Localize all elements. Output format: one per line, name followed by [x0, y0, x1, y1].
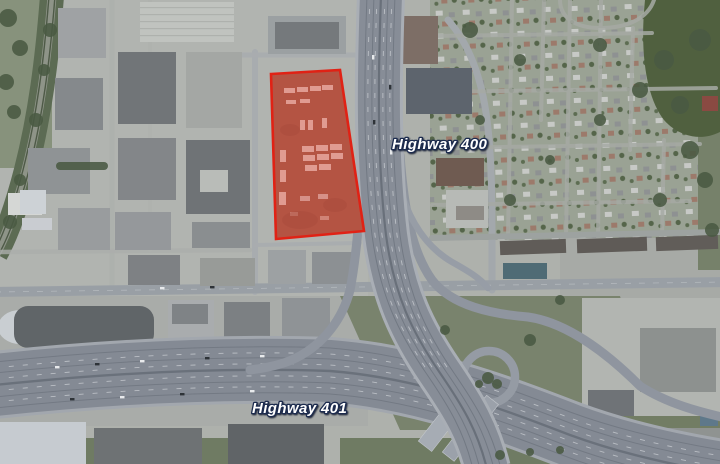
aerial-map: Highway 400 Highway 401 [0, 0, 720, 464]
highway-401-label: Highway 401 [252, 400, 347, 417]
highway-400-label: Highway 400 [392, 136, 488, 153]
map-canvas[interactable]: Highway 400 Highway 401 [0, 0, 720, 464]
